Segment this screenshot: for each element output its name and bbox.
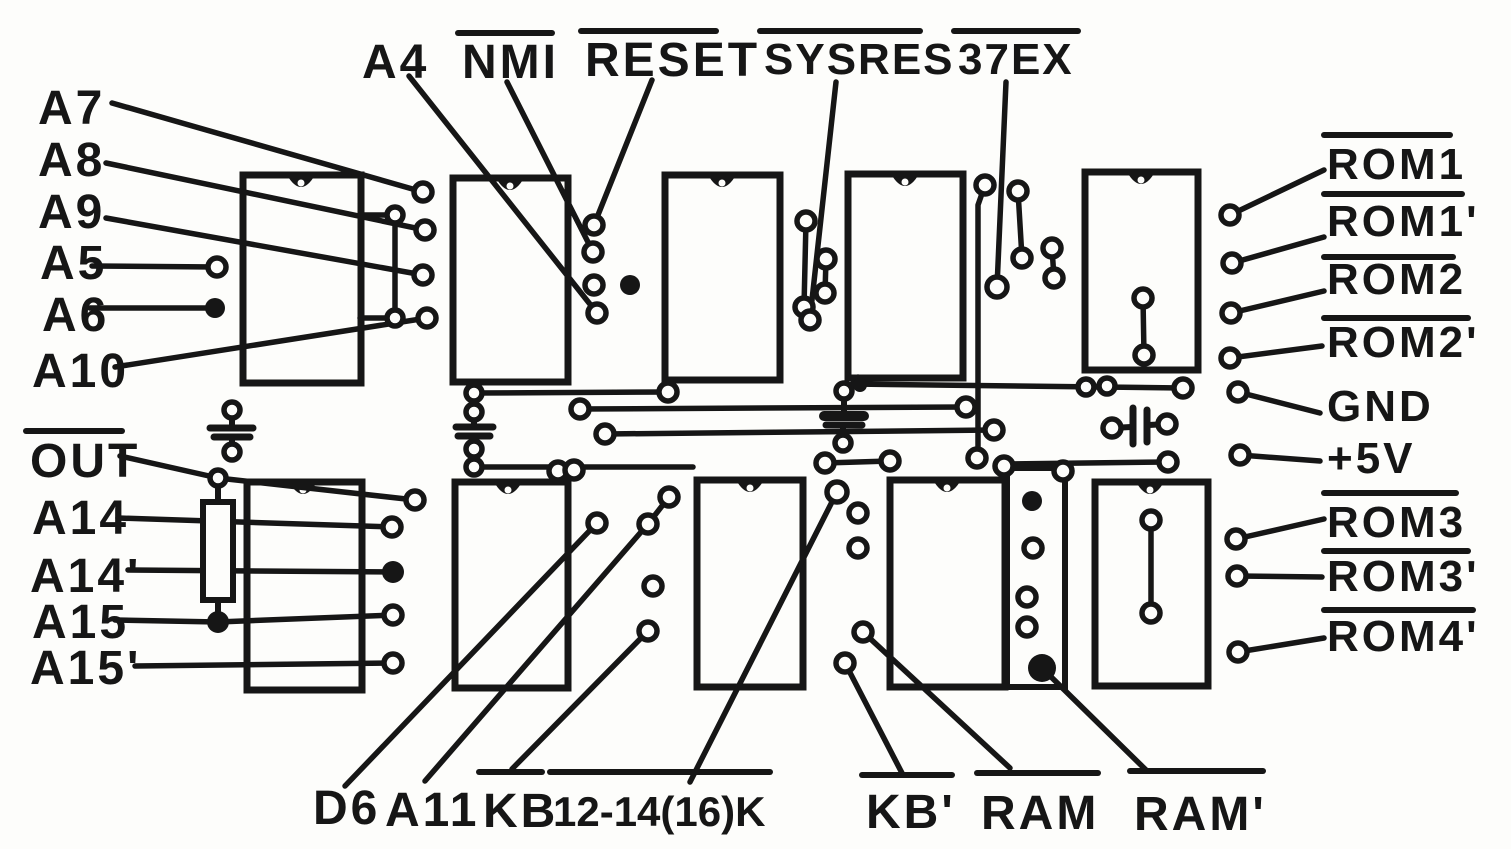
label-a10: A10	[32, 345, 129, 398]
scanned-schematic-page: A7 A8 A9 A5 A6 A10 A4 NMI RESET SYSRES 3…	[0, 0, 1511, 849]
label-rom4p: ROM4'	[1327, 612, 1480, 661]
label-rom3: ROM3	[1327, 498, 1466, 547]
label-a5: A5	[40, 237, 107, 290]
label-kbp: KB'	[866, 786, 956, 839]
label-p5v: +5V	[1327, 434, 1416, 483]
label-rom3p: ROM3'	[1327, 552, 1480, 601]
ic-chip	[848, 174, 963, 378]
label-d6: D6	[313, 782, 380, 835]
capacitor-symbols	[210, 382, 1167, 468]
label-12-14-16k: 12-14(16)K	[553, 788, 765, 835]
label-a6: A6	[42, 289, 109, 342]
label-gnd: GND	[1327, 382, 1434, 431]
ic-chip	[453, 178, 568, 382]
label-rom2: ROM2	[1327, 255, 1466, 304]
label-rom2p: ROM2'	[1327, 318, 1480, 367]
schematic-canvas: A7 A8 A9 A5 A6 A10 A4 NMI RESET SYSRES 3…	[0, 0, 1511, 849]
resistor-symbol	[203, 478, 233, 622]
label-a9: A9	[38, 186, 105, 239]
label-sysres: SYSRES	[764, 35, 955, 84]
ic-chip	[890, 480, 1005, 687]
label-kb: KB	[483, 785, 558, 838]
label-a14: A14	[32, 492, 129, 545]
label-a11: A11	[385, 784, 479, 837]
ic-chip	[697, 480, 803, 687]
label-a8: A8	[38, 134, 105, 187]
label-a7: A7	[38, 82, 105, 135]
label-nmi: NMI	[462, 36, 559, 89]
label-ramp: RAM'	[1134, 788, 1267, 841]
label-a15p: A15'	[30, 642, 141, 695]
label-a4: A4	[362, 36, 429, 89]
label-rom1p: ROM1'	[1327, 197, 1480, 246]
label-out: OUT	[30, 435, 140, 488]
label-ram: RAM	[981, 787, 1099, 840]
label-37ex: 37EX	[958, 35, 1074, 84]
label-rom1: ROM1	[1327, 140, 1466, 189]
ic-chip	[247, 482, 362, 690]
ic-chip	[665, 175, 780, 380]
label-reset: RESET	[585, 34, 760, 87]
